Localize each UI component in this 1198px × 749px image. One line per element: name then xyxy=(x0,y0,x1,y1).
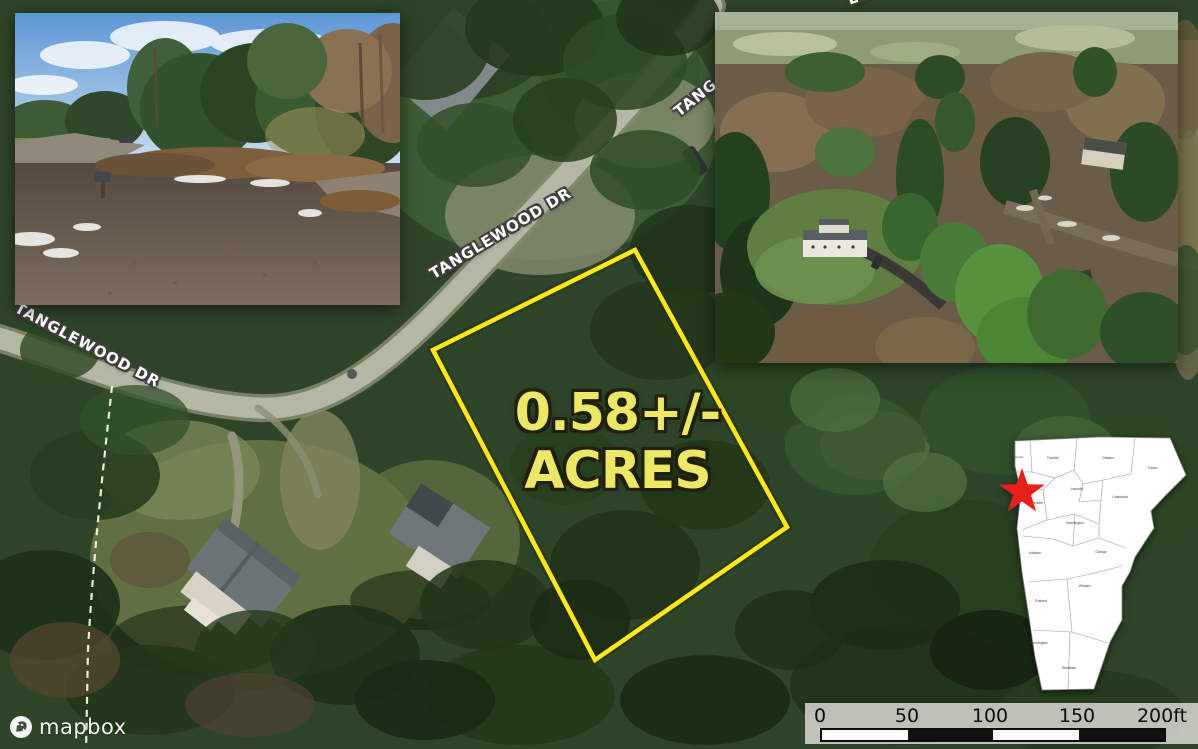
scale-tick: 100 xyxy=(972,706,1008,726)
street-photo-scene xyxy=(15,13,400,305)
acreage-value: 0.58+/- xyxy=(460,384,775,442)
scale-segment xyxy=(1079,730,1165,740)
mapbox-logo-icon xyxy=(8,714,34,740)
mapbox-logo-text: mapbox xyxy=(39,715,127,739)
county-label: Windsor xyxy=(1079,584,1092,588)
scale-segment xyxy=(993,730,1079,740)
county-label: Grand Isle xyxy=(1011,455,1024,459)
county-label: Bennington xyxy=(1030,641,1047,645)
mapbox-attribution[interactable]: mapbox xyxy=(8,714,127,740)
scale-bar: 0 50 100 150 200ft xyxy=(805,703,1198,744)
scale-tick: 0 xyxy=(814,706,826,726)
county-label: Windham xyxy=(1062,666,1076,670)
acreage-unit: ACRES xyxy=(460,442,775,500)
scale-tick: 50 xyxy=(895,706,919,726)
listing-map-graphic: TANGLEWOOD DR TANGLEWOOD DR TANG EWOO 0.… xyxy=(0,0,1198,749)
aerial-photo-scene xyxy=(715,12,1178,363)
county-label: Orleans xyxy=(1102,456,1114,460)
county-label: Lamoille xyxy=(1071,487,1084,491)
acreage-label: 0.58+/- ACRES xyxy=(460,384,775,500)
county-label: Caledonia xyxy=(1112,495,1127,499)
scale-tick: 150 xyxy=(1059,706,1095,726)
county-label: Washington xyxy=(1066,521,1084,525)
county-label: Franklin xyxy=(1047,456,1059,460)
county-label: Rutland xyxy=(1035,599,1047,603)
county-label: Addison xyxy=(1029,551,1041,555)
county-label: Orange xyxy=(1095,550,1106,554)
scale-tick: 200ft xyxy=(1137,706,1187,726)
distant-car xyxy=(119,135,133,143)
state-outline xyxy=(1015,437,1186,690)
scale-segment xyxy=(822,730,908,740)
street-photo-inset xyxy=(15,13,400,305)
scale-bar-segments xyxy=(820,728,1166,742)
scale-segment xyxy=(908,730,994,740)
vermont-county-map: Grand Isle Franklin Orleans Essex Lamoil… xyxy=(995,432,1198,697)
aerial-photo-inset xyxy=(715,12,1178,363)
county-label: Essex xyxy=(1148,466,1158,470)
